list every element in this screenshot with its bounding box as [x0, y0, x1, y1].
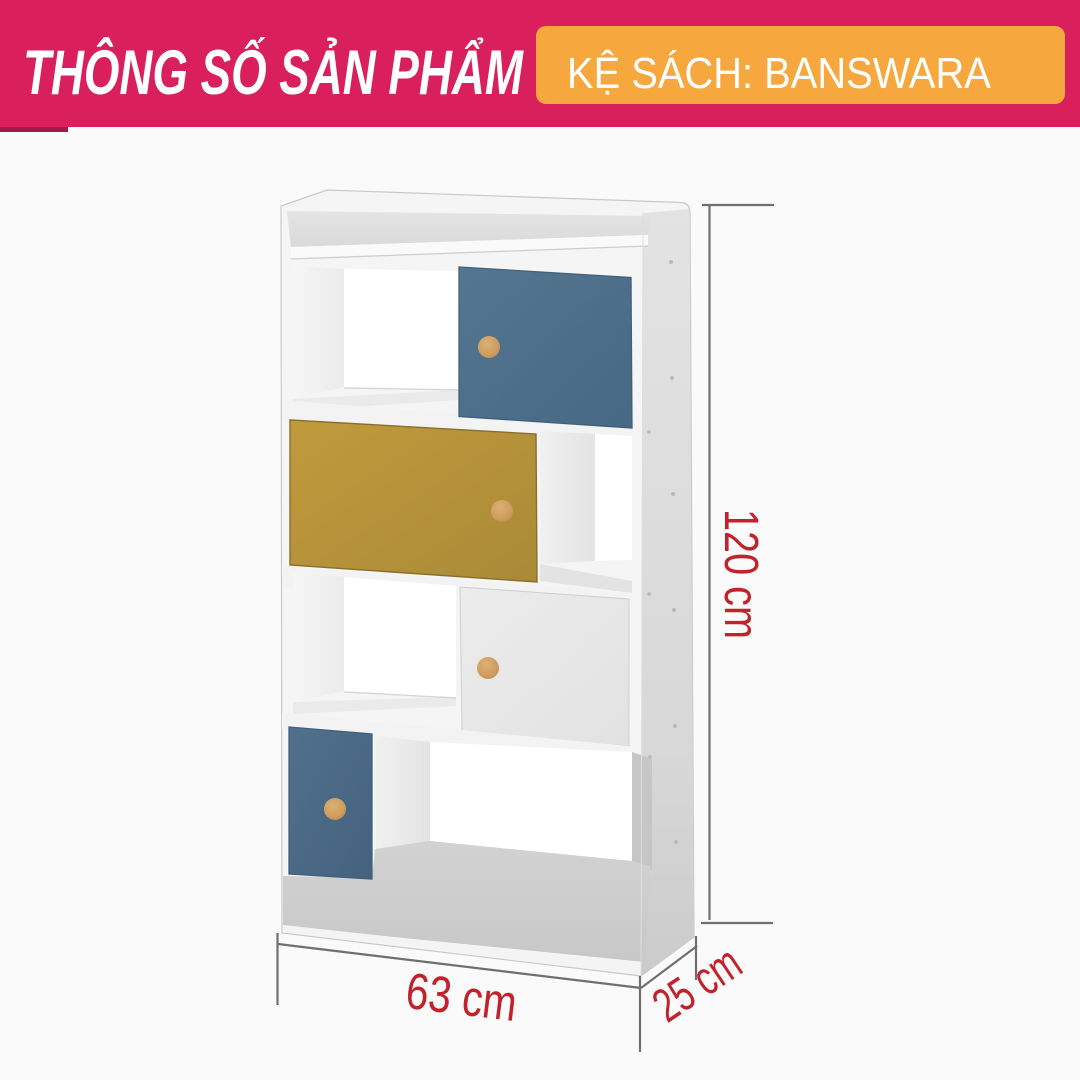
svg-text:63 cm: 63 cm	[403, 962, 520, 1032]
svg-text:120 cm: 120 cm	[714, 509, 767, 639]
